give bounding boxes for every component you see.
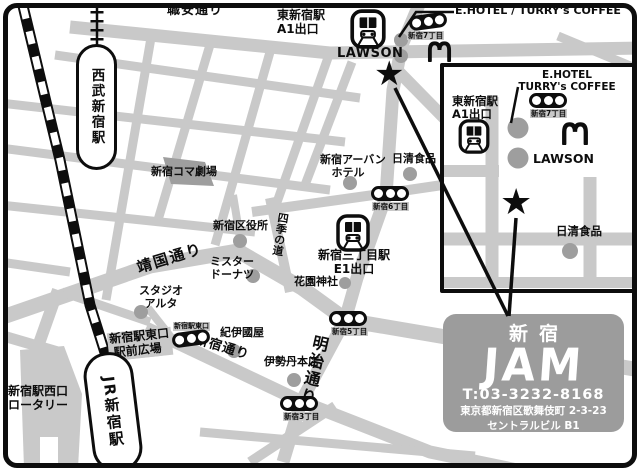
inset-station-label-higashi-shinjuku: 東新宿駅 A1出口 bbox=[452, 95, 498, 121]
label-hanazono-shrine: 花園神社 bbox=[294, 276, 338, 289]
hotel-name: E.HOTEL bbox=[542, 69, 592, 81]
signal-label-shinjuku-6chome: 新宿6丁目 bbox=[372, 202, 409, 211]
label-mister-donut: ミスター ドーナツ bbox=[206, 256, 258, 281]
signal-label-shinjuku-7chome: 新宿7丁目 bbox=[407, 31, 444, 40]
shop-name-2: ドーナツ bbox=[210, 268, 254, 281]
label-urban-hotel: 新宿アーバン ホテル bbox=[320, 154, 376, 179]
label-nissin-foods: 日清食品 bbox=[392, 153, 436, 166]
inset-label-lawson: LAWSON bbox=[533, 152, 594, 166]
signal-shinjuku-6chome bbox=[371, 186, 409, 201]
shinjuku-jam-access-map: 職安通り E.HOTEL / TURRY's COFFEE 東新宿駅 A1出口 … bbox=[0, 0, 640, 471]
venue-address: 東京都新宿区歌舞伎町 2-3-23 bbox=[443, 403, 624, 418]
hotel-name-2: ホテル bbox=[332, 166, 365, 179]
station-name: 東新宿駅 bbox=[277, 8, 325, 22]
signal-label-shinjuku-5chome: 新宿5丁目 bbox=[331, 327, 368, 336]
label-ehotel-turrys-coffee: E.HOTEL / TURRY's COFFEE bbox=[455, 5, 621, 18]
venue-star-icon: ★ bbox=[374, 57, 404, 91]
venue-logo: JAM bbox=[443, 345, 624, 388]
exit-name: A1出口 bbox=[452, 107, 492, 121]
coffee-name: TURRY's COFFEE bbox=[518, 81, 615, 93]
station-name: JR新宿駅 bbox=[98, 375, 128, 449]
label-ward-office: 新宿区役所 bbox=[213, 220, 268, 233]
venue-building: セントラルビル B1 bbox=[443, 418, 624, 432]
alta-name: スタジオ bbox=[139, 284, 183, 297]
station-name: 西武新宿駅 bbox=[87, 68, 107, 146]
shop-name: ミスター bbox=[210, 255, 254, 268]
hotel-name: 新宿アーバン bbox=[320, 153, 386, 166]
venue-info-card: 新宿 JAM T:03-3232-8168 東京都新宿区歌舞伎町 2-3-23 … bbox=[443, 314, 624, 432]
signal-shinjuku-3chome bbox=[280, 396, 318, 411]
exit-name: E1出口 bbox=[334, 262, 375, 276]
inset-signal-shinjuku-7chome bbox=[529, 93, 567, 108]
station-pill-seibu-shinjuku: 西武新宿駅 bbox=[76, 44, 117, 170]
label-studio-alta: スタジオ アルタ bbox=[133, 285, 189, 310]
inset-label-ehotel: E.HOTEL TURRY's COFFEE bbox=[506, 69, 628, 93]
label-kinokuniya: 紀伊國屋 bbox=[220, 327, 264, 340]
signal-shinjuku-5chome bbox=[329, 311, 367, 326]
station-label-shinjuku-sanchome: 新宿三丁目駅 E1出口 bbox=[318, 249, 390, 277]
station-name: 東新宿駅 bbox=[452, 94, 498, 108]
inset-signal-label: 新宿7丁目 bbox=[530, 109, 567, 118]
alta-name-2: アルタ bbox=[145, 297, 178, 310]
inset-label-nissin: 日清食品 bbox=[556, 225, 602, 238]
rotary: ロータリー bbox=[8, 398, 68, 412]
street-label-shokuan-dori: 職安通り bbox=[167, 4, 223, 19]
label-koma-theater: 新宿コマ劇場 bbox=[151, 166, 217, 179]
label-west-exit-rotary: 新宿駅西口 ロータリー bbox=[8, 385, 68, 413]
inset-venue-star-icon: ★ bbox=[500, 185, 532, 221]
detail-inset-map: E.HOTEL TURRY's COFFEE 新宿7丁目 東新宿駅 A1出口 L… bbox=[440, 63, 637, 293]
station-label-higashi-shinjuku: 東新宿駅 A1出口 bbox=[277, 9, 325, 37]
west-exit: 新宿駅西口 bbox=[8, 384, 68, 398]
exit-name: A1出口 bbox=[277, 22, 319, 36]
signal-label-shinjuku-3chome: 新宿3丁目 bbox=[283, 412, 320, 421]
